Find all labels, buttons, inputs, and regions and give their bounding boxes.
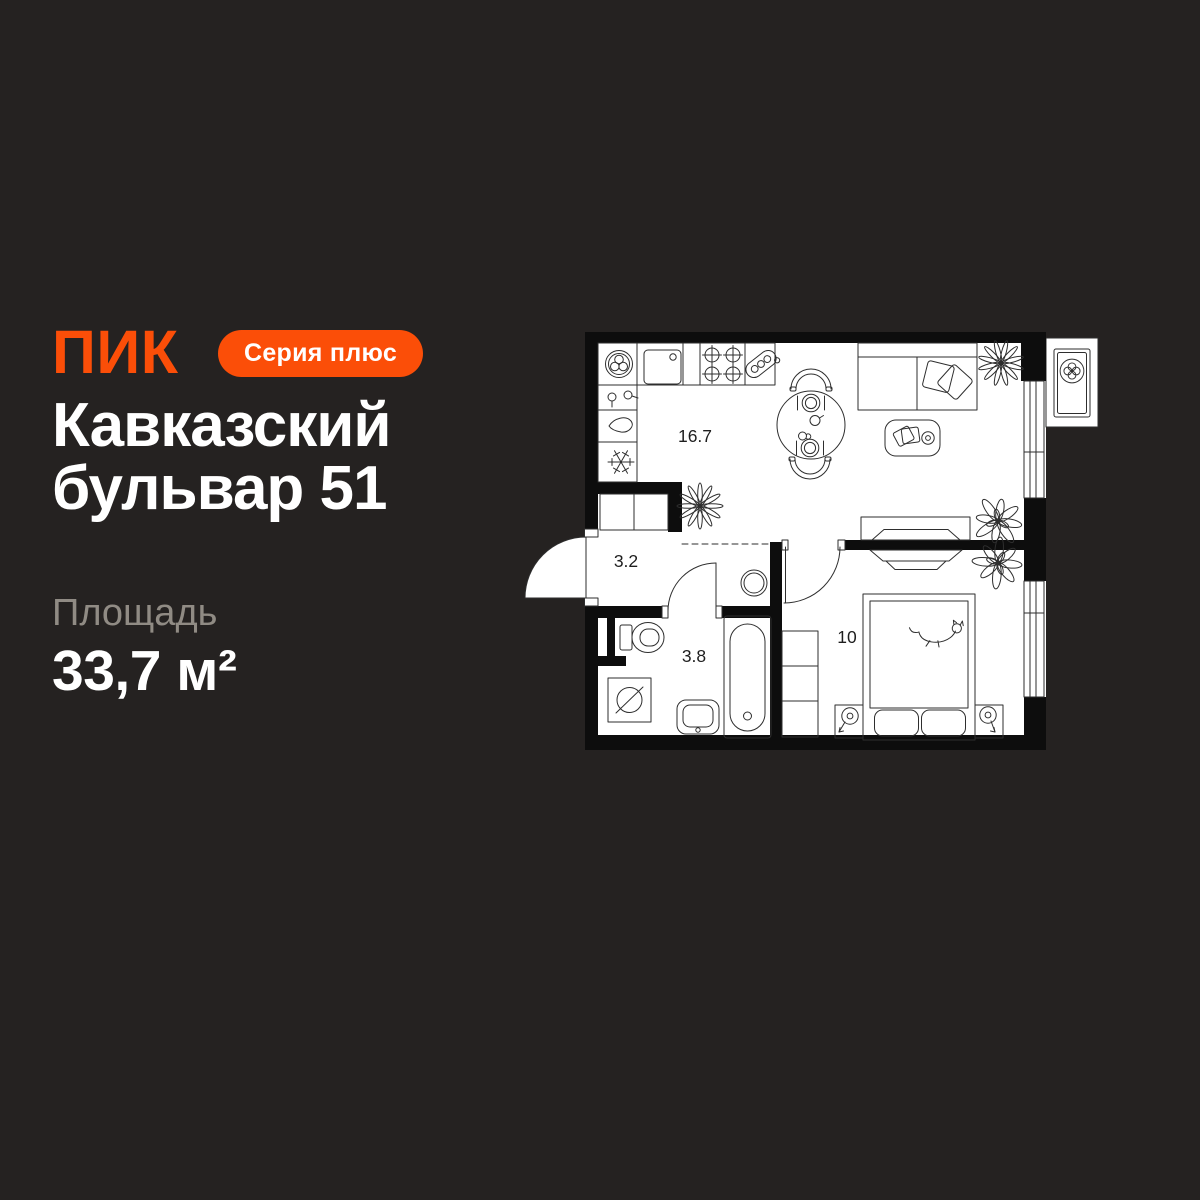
room-label-bedroom: 10 [837,627,857,647]
series-plus-badge-label: Серия плюс [244,339,397,368]
project-title: Кавказский бульвар 51 [52,394,390,520]
area-value: 33,7 м² [52,638,236,704]
project-title-line1: Кавказский [52,394,390,457]
floor-plan: 16.7 3.2 3.8 10 [520,316,1120,760]
pik-logo: ПИК [52,322,178,382]
bedroom-window [1024,581,1044,697]
room-label-hallway: 3.2 [614,551,638,571]
project-title-line2: бульвар 51 [52,457,390,520]
room-label-bathroom: 3.8 [682,646,706,666]
series-plus-badge: Серия плюс [218,330,423,377]
living-room-window [1024,381,1044,498]
room-label-kitchen-living: 16.7 [678,426,712,446]
promo-card: ПИК Серия плюс Кавказский бульвар 51 Пло… [0,0,1200,1200]
entrance-door-icon [525,537,586,598]
area-label: Площадь [52,592,217,635]
